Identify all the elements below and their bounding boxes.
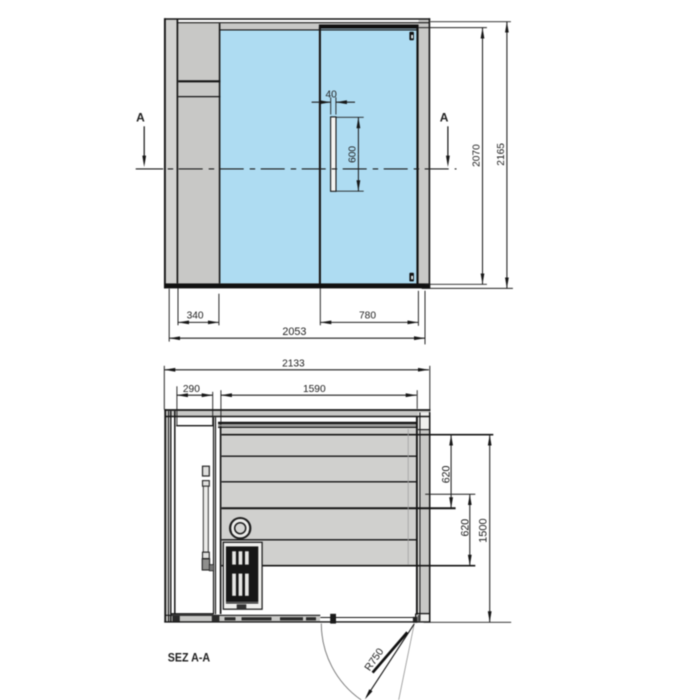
svg-text:340: 340 xyxy=(187,310,204,321)
svg-text:1500: 1500 xyxy=(477,518,489,542)
svg-text:2070: 2070 xyxy=(472,144,483,167)
svg-text:2053: 2053 xyxy=(282,326,306,338)
svg-text:A: A xyxy=(136,110,145,124)
svg-text:600: 600 xyxy=(348,146,359,163)
svg-text:620: 620 xyxy=(441,465,453,483)
svg-text:620: 620 xyxy=(460,519,472,537)
svg-text:1590: 1590 xyxy=(303,384,326,395)
svg-text:780: 780 xyxy=(359,310,376,321)
svg-text:40: 40 xyxy=(326,90,338,101)
svg-text:290: 290 xyxy=(183,384,200,395)
svg-text:2133: 2133 xyxy=(282,359,305,370)
svg-text:A: A xyxy=(440,110,449,124)
svg-text:SEZ A-A: SEZ A-A xyxy=(168,650,210,664)
svg-text:2165: 2165 xyxy=(496,143,507,166)
